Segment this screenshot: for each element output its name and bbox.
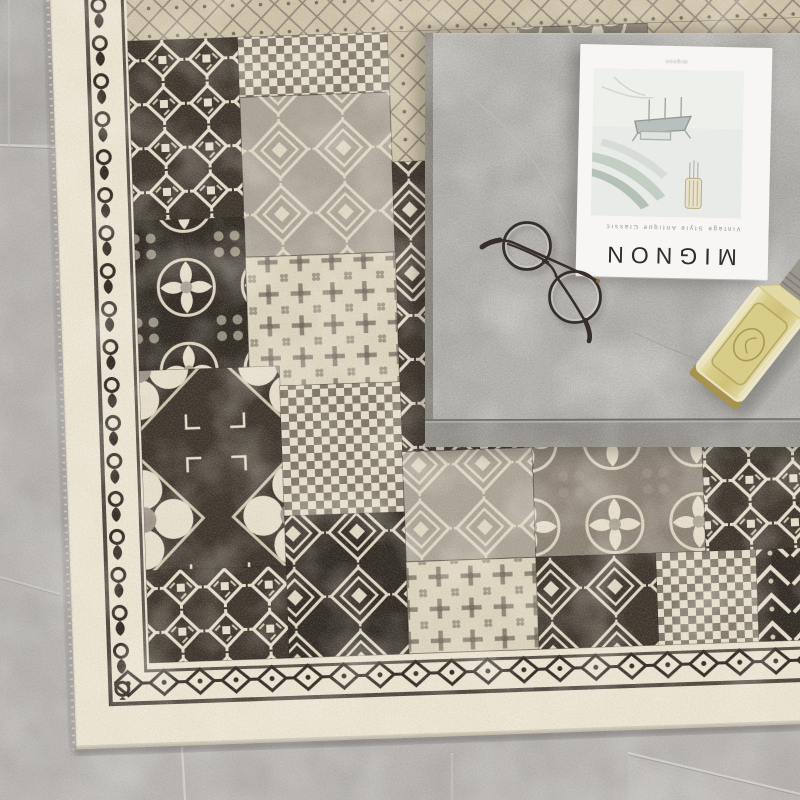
magazine-subtitle-illegible: Vintage Style Antique Classic (577, 222, 769, 232)
magazine-cover-photo (591, 68, 744, 218)
magazine-caption-illegible: mignon (580, 56, 772, 66)
magazine-title: MIGNON (576, 240, 769, 271)
magazine-cover-art (591, 68, 744, 218)
photo-scene: mignon (0, 0, 800, 800)
magazine: mignon (576, 44, 773, 280)
